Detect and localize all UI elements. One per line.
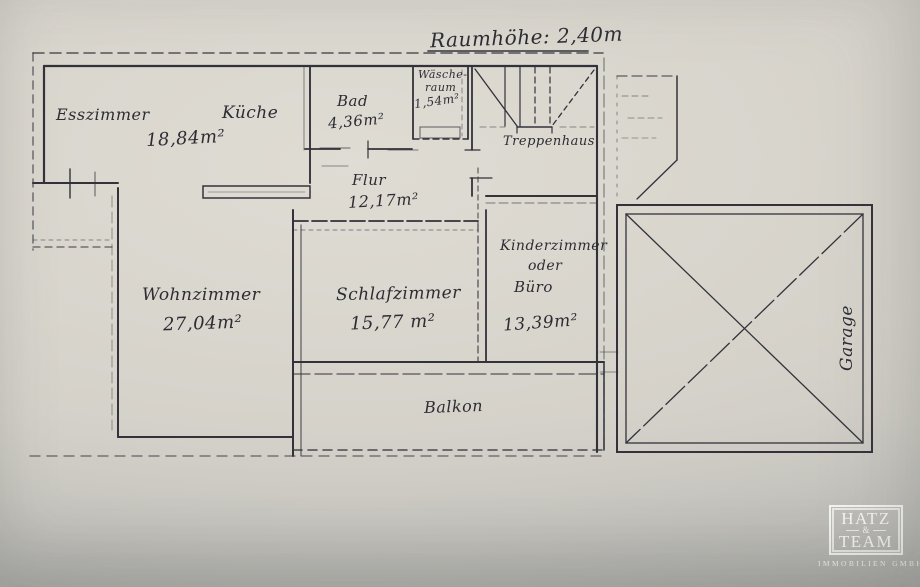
staircase-drawing <box>475 67 594 133</box>
balkon-walls <box>30 362 608 456</box>
garage-cross <box>626 214 863 443</box>
room-label-schlafzimmer: Schlafzimmer <box>336 283 461 305</box>
room-label-kinderzimmer-line3: Büro <box>514 278 553 296</box>
room-label-balkon: Balkon <box>424 396 484 417</box>
logo-rule-right <box>873 530 886 531</box>
realtor-logo: HATZ & TEAM IMMOBILIEN GMBH <box>818 505 914 568</box>
room-label-esszimmer: Esszimmer <box>56 105 150 124</box>
flur-kinderzimmer-walls <box>293 168 618 372</box>
realtor-logo-name-top: HATZ <box>841 511 890 526</box>
room-label-wohnzimmer: Wohnzimmer <box>142 285 260 305</box>
room-label-waescheraum-line1: Wäsche- <box>418 68 468 81</box>
room-label-treppenhaus: Treppenhaus <box>503 134 595 149</box>
floorplan-photo: Raumhöhe: 2,40m Esszimmer Küche 18,84m² … <box>0 0 920 587</box>
realtor-logo-subtitle: IMMOBILIEN GMBH <box>818 559 914 568</box>
room-label-kueche: Küche <box>222 103 278 123</box>
room-label-garage: Garage <box>837 288 863 388</box>
logo-rule-left <box>846 530 859 531</box>
room-label-flur: Flur <box>352 171 386 189</box>
room-label-kinderzimmer-line2: oder <box>528 258 562 274</box>
room-label-bad: Bad <box>337 92 368 110</box>
washer-symbol <box>420 127 460 138</box>
room-area-flur: 12,17m² <box>348 189 420 212</box>
room-area-schlafzimmer: 15,77 m² <box>350 311 436 335</box>
annex-outline <box>617 76 677 199</box>
realtor-logo-box: HATZ & TEAM <box>829 505 903 555</box>
room-label-kinderzimmer-line1: Kinderzimmer <box>500 238 607 254</box>
room-area-wohnzimmer: 27,04m² <box>163 312 243 336</box>
room-area-kueche: 18,84m² <box>146 126 226 151</box>
realtor-logo-name-bottom: TEAM <box>839 534 893 549</box>
